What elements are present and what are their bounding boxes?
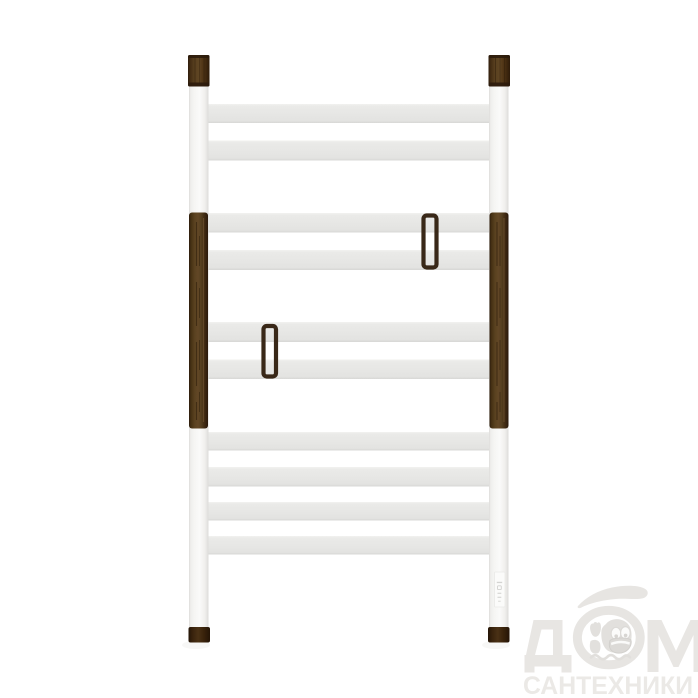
- svg-text:САНТЕХНИКИ: САНТЕХНИКИ: [523, 673, 693, 698]
